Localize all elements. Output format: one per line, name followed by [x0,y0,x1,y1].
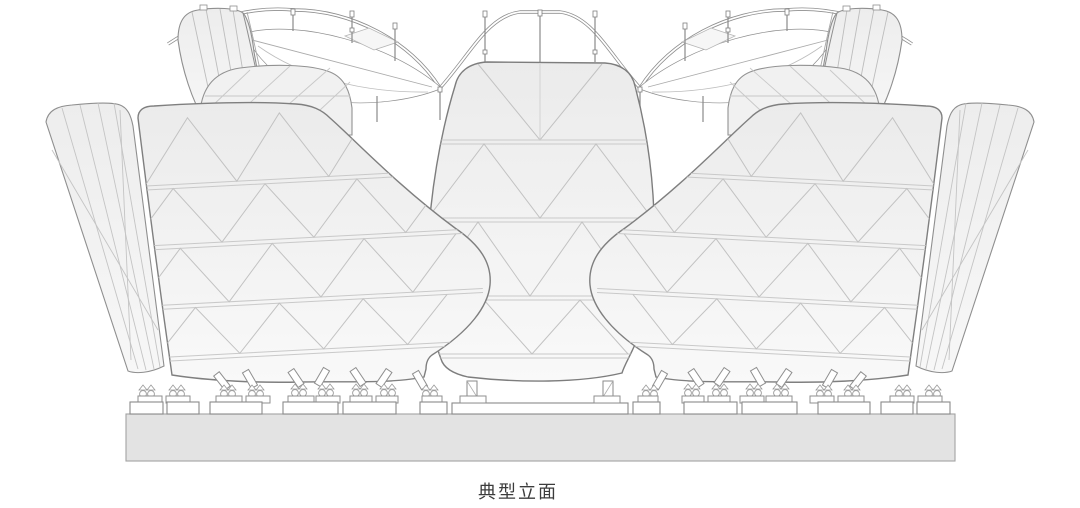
drawing-caption: 典型立面 [0,478,1036,504]
podium-slab [126,414,955,461]
post-clamp [538,10,542,16]
pedestal-block-centre [452,403,628,414]
elevation-drawing-canvas: 典型立面 [0,0,1080,508]
elevation-drawing [0,0,1080,508]
